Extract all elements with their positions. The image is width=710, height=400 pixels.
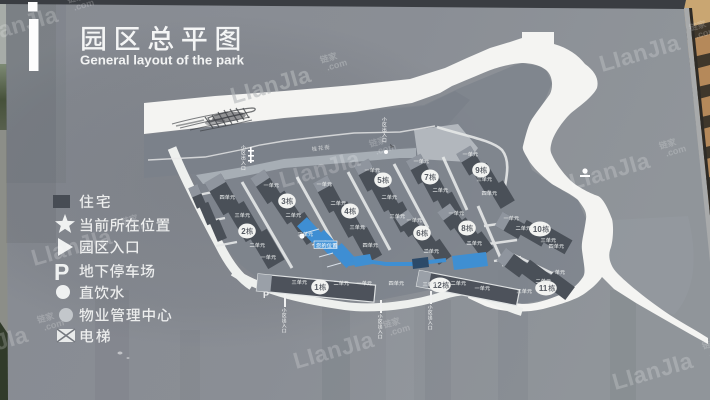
svg-text:1: 1: [314, 283, 319, 292]
svg-text:6: 6: [416, 229, 421, 238]
svg-text:General layout of the park: General layout of the park: [80, 53, 245, 68]
svg-text:3: 3: [281, 197, 286, 206]
svg-text:9: 9: [475, 166, 480, 175]
svg-text:4: 4: [344, 207, 349, 216]
svg-text:8: 8: [461, 224, 466, 233]
svg-text:P: P: [263, 290, 269, 300]
svg-text:10: 10: [533, 225, 542, 234]
svg-text:2: 2: [241, 227, 246, 236]
svg-text:5: 5: [377, 176, 382, 185]
svg-text:7: 7: [424, 173, 429, 182]
svg-text:11: 11: [539, 284, 548, 293]
